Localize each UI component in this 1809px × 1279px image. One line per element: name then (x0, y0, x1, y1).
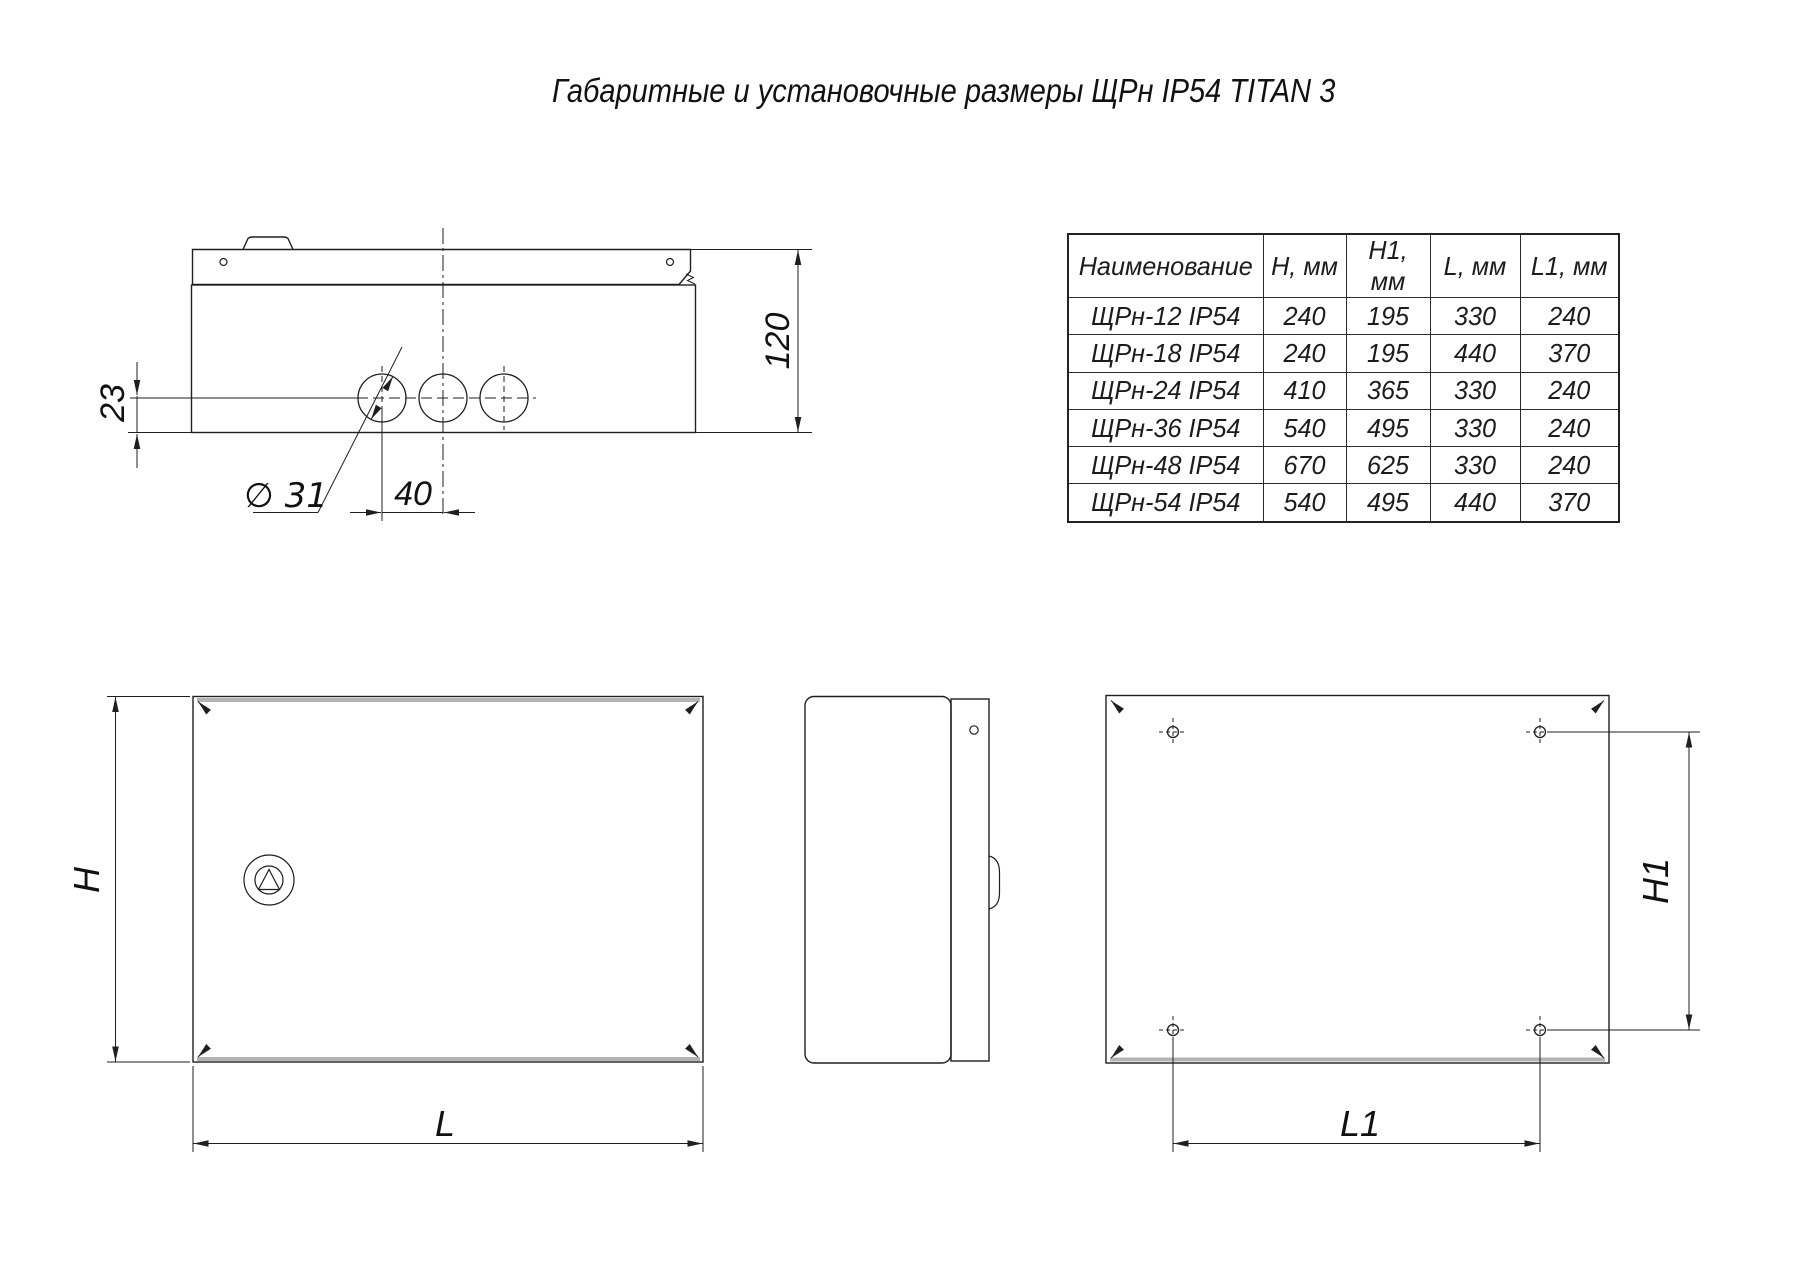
rivet-hole (220, 259, 227, 266)
drawing-sheet: Габаритные и установочные размеры ЩРн IP… (0, 0, 1809, 1279)
mounting-hole (1159, 718, 1187, 746)
dim-label-mount-height: H1 (1635, 858, 1676, 904)
dim-gland-offset (128, 362, 192, 468)
front-view-drawing (107, 697, 703, 1153)
corner-tick (1111, 701, 1120, 710)
corner-tick (1595, 1049, 1604, 1058)
enclosure-lid-outline (193, 250, 691, 285)
dim-label-length: L (435, 1103, 455, 1144)
drawing-linework: ∅ 31 40 23 120 (0, 0, 1809, 1279)
side-door-outline (951, 699, 989, 1061)
corner-tick (1111, 1049, 1120, 1058)
dim-label-gland-spacing: 40 (394, 475, 432, 513)
dim-mount-height (1547, 732, 1700, 1030)
top-view-drawing (128, 228, 812, 521)
side-rivet-hole (970, 726, 978, 734)
dim-label-gland-offset: 23 (94, 384, 132, 423)
hinge-latch-outline (243, 237, 293, 250)
rivet-hole (667, 259, 674, 266)
corner-tick (689, 702, 698, 711)
corner-tick (198, 1048, 207, 1057)
dim-label-height: H (66, 866, 107, 893)
side-body-outline (805, 697, 951, 1064)
corner-tick (198, 702, 207, 711)
rear-view-drawing (1106, 696, 1700, 1153)
rear-panel-outline (1106, 696, 1609, 1064)
corner-tick (1595, 701, 1604, 710)
corner-tick (689, 1048, 698, 1057)
lock-symbol (244, 855, 294, 905)
dim-label-depth: 120 (759, 313, 797, 370)
dim-label-mount-length: L1 (1340, 1103, 1380, 1144)
dim-label-gland-diameter: ∅ 31 (244, 476, 328, 516)
side-lock-bump (989, 856, 1000, 909)
door-outline (193, 697, 703, 1063)
side-view-drawing (805, 697, 1000, 1064)
dim-height (107, 697, 190, 1063)
